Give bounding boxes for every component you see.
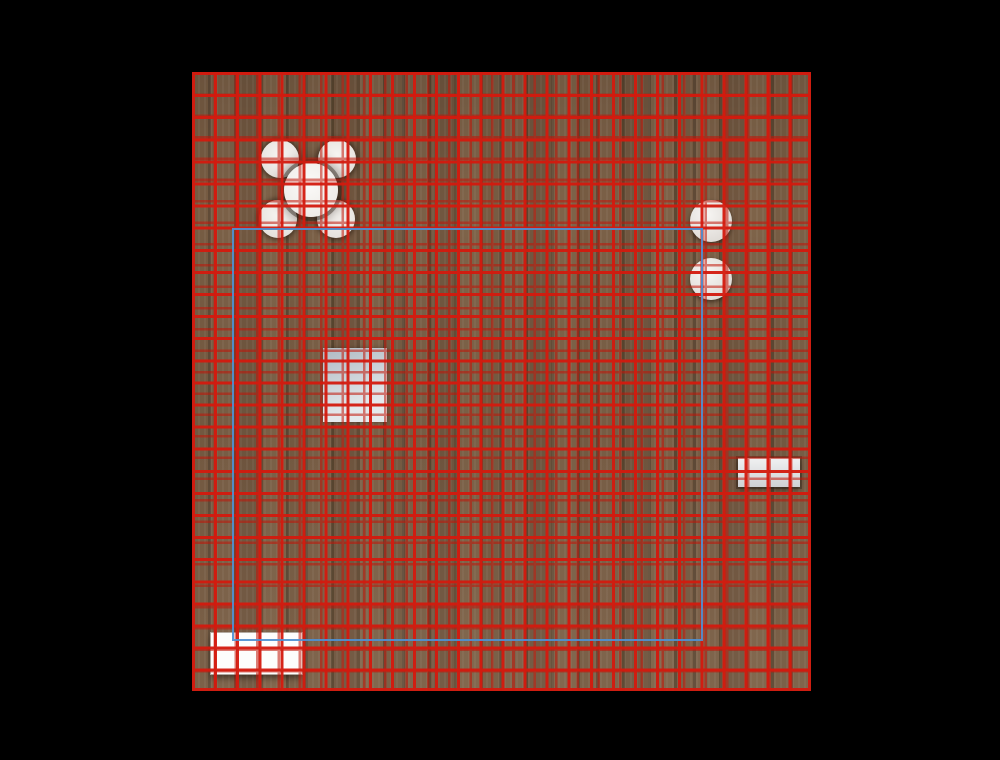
floor-canvas[interactable] [192, 72, 811, 691]
counter-strip[interactable] [192, 72, 194, 78]
viewport-stage [0, 0, 1000, 760]
dining-table[interactable] [284, 163, 338, 217]
selection-rect[interactable] [232, 228, 703, 641]
side-table-right[interactable] [738, 458, 800, 487]
